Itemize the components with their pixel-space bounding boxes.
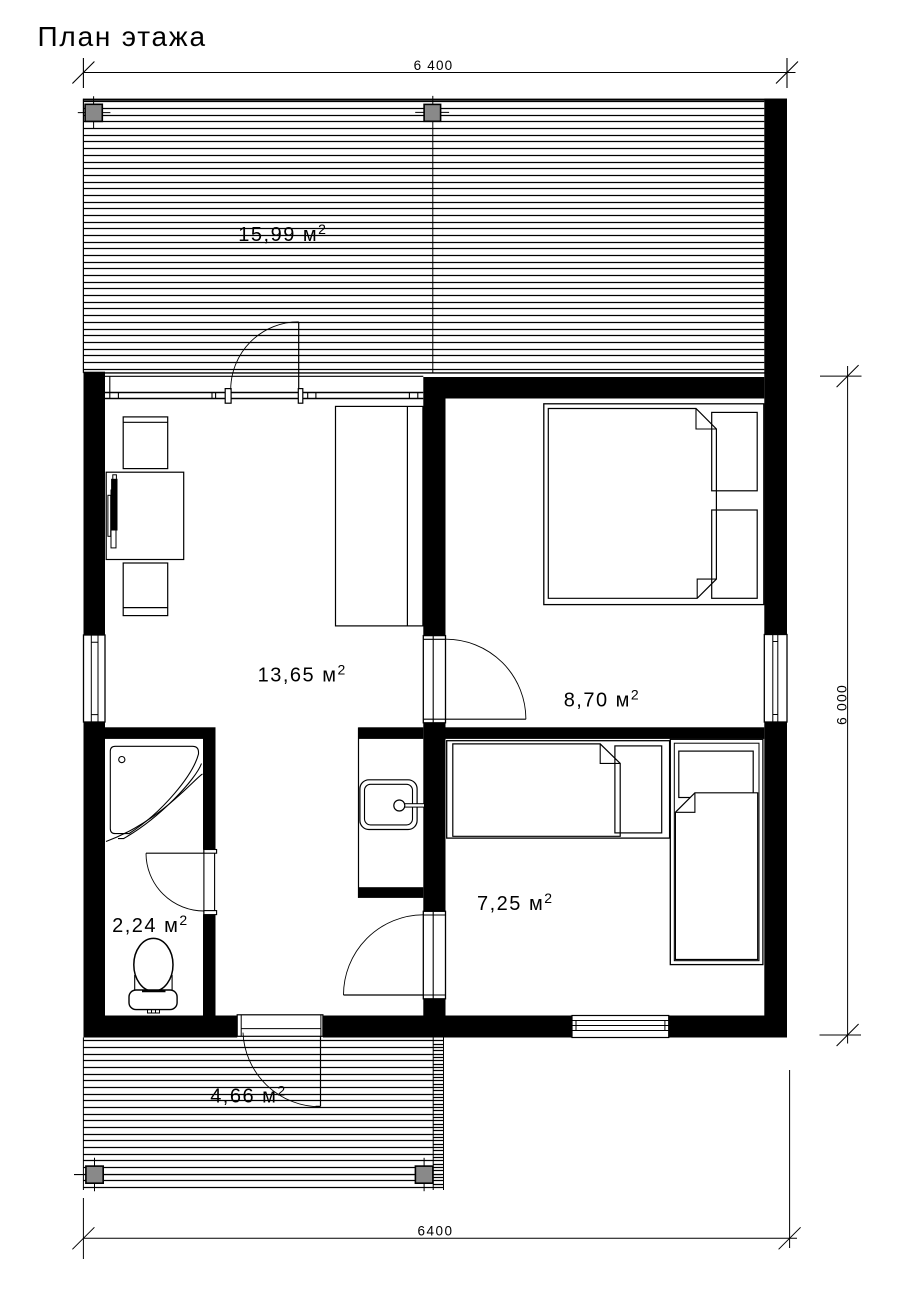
svg-text:6400: 6400 — [417, 1223, 453, 1238]
svg-text:7,25 м2: 7,25 м2 — [477, 890, 554, 915]
svg-text:13,65 м2: 13,65 м2 — [258, 661, 347, 686]
svg-text:План этажа: План этажа — [38, 21, 207, 52]
svg-text:8,70 м2: 8,70 м2 — [564, 687, 641, 712]
svg-text:4,66 м2: 4,66 м2 — [210, 1083, 287, 1108]
svg-text:6 400: 6 400 — [414, 58, 454, 73]
svg-text:2,24 м2: 2,24 м2 — [112, 912, 189, 937]
svg-text:15,99 м2: 15,99 м2 — [238, 221, 327, 246]
svg-text:6 000: 6 000 — [834, 684, 850, 725]
